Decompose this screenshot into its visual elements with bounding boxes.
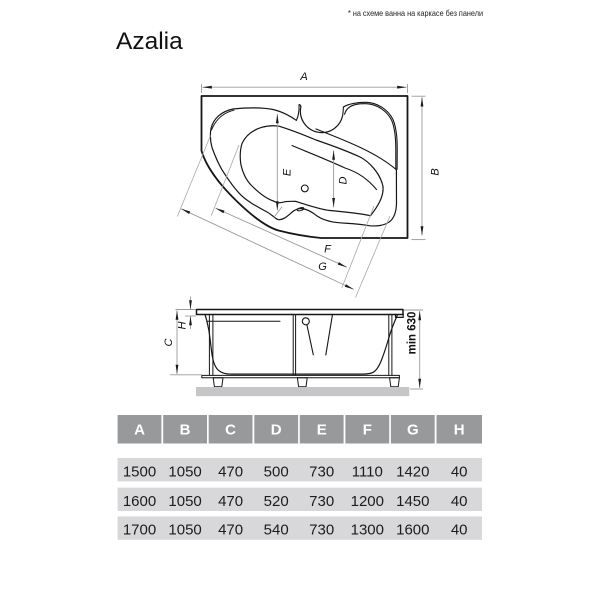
svg-text:min 630: min 630	[407, 312, 419, 355]
svg-text:520: 520	[264, 493, 289, 510]
svg-text:* на схеме ванна на каркасе бе: * на схеме ванна на каркасе без панели	[348, 8, 483, 18]
svg-text:A: A	[134, 422, 145, 439]
svg-text:F: F	[324, 244, 332, 256]
svg-text:H: H	[177, 321, 189, 329]
svg-text:1600: 1600	[396, 522, 429, 539]
svg-text:1450: 1450	[396, 493, 429, 510]
svg-text:1600: 1600	[123, 493, 156, 510]
svg-text:G: G	[407, 422, 419, 439]
svg-text:540: 540	[264, 522, 289, 539]
svg-text:1050: 1050	[168, 493, 201, 510]
svg-text:1300: 1300	[351, 522, 384, 539]
svg-text:470: 470	[218, 463, 243, 480]
svg-text:D: D	[338, 176, 350, 184]
svg-text:470: 470	[218, 522, 243, 539]
svg-text:1050: 1050	[168, 463, 201, 480]
svg-text:G: G	[318, 261, 327, 273]
svg-text:730: 730	[309, 522, 334, 539]
svg-text:730: 730	[309, 463, 334, 480]
svg-text:H: H	[454, 422, 465, 439]
svg-text:C: C	[225, 422, 236, 439]
svg-text:1420: 1420	[396, 463, 429, 480]
svg-text:40: 40	[451, 493, 468, 510]
svg-text:40: 40	[451, 463, 468, 480]
svg-text:F: F	[363, 422, 372, 439]
svg-text:C: C	[163, 338, 175, 346]
svg-text:D: D	[271, 422, 282, 439]
svg-text:1050: 1050	[168, 522, 201, 539]
svg-text:500: 500	[264, 463, 289, 480]
svg-text:1700: 1700	[123, 522, 156, 539]
svg-text:B: B	[180, 422, 191, 439]
svg-text:470: 470	[218, 493, 243, 510]
svg-text:1110: 1110	[352, 463, 383, 480]
svg-text:Azalia: Azalia	[116, 28, 183, 55]
svg-text:E: E	[317, 422, 327, 439]
svg-text:E: E	[282, 168, 294, 176]
svg-text:730: 730	[309, 493, 334, 510]
svg-text:B: B	[430, 168, 442, 175]
svg-text:40: 40	[451, 522, 468, 539]
svg-text:1500: 1500	[123, 463, 156, 480]
svg-text:1200: 1200	[351, 493, 384, 510]
svg-text:A: A	[299, 71, 307, 83]
